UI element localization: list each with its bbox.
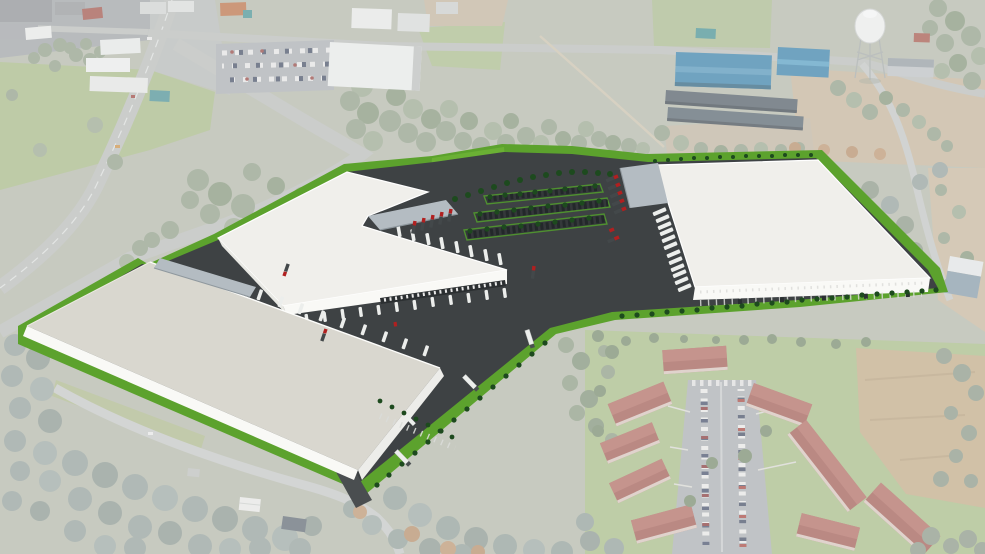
site-rendering-image — [0, 0, 985, 554]
tractor-at-dock — [393, 322, 397, 327]
